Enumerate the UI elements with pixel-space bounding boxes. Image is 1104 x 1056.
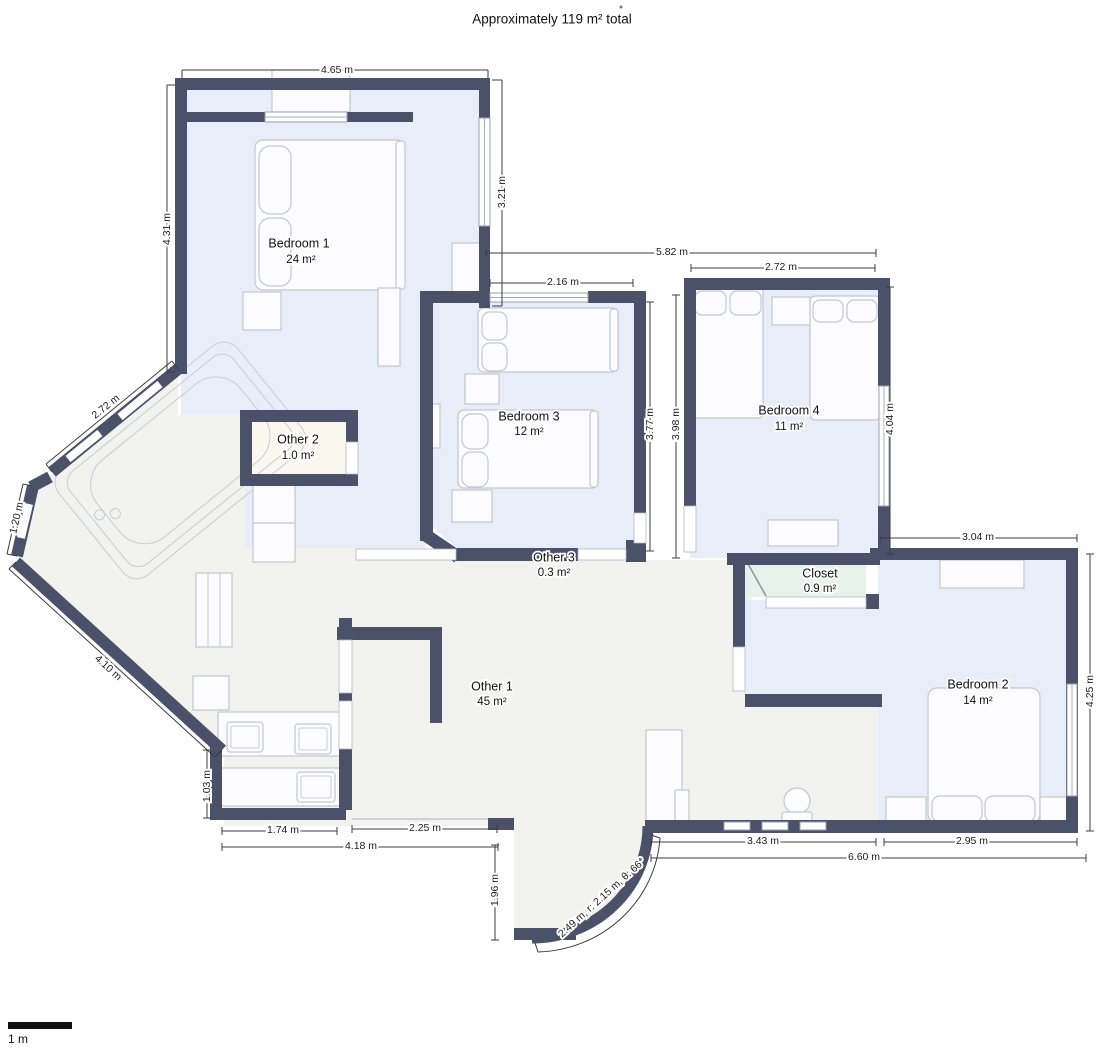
- bedroom1-double-bed: [255, 140, 405, 290]
- dim-b2-bottom: 2.95 m: [956, 835, 988, 847]
- hallway-cabinet-double: [253, 484, 295, 562]
- area-bedroom3: 12 m²: [514, 426, 544, 438]
- dim-b2-top: 3.04 m: [962, 531, 994, 543]
- dim-toilet-bottom: 3.43 m: [747, 835, 779, 847]
- area-bedroom2: 14 m²: [963, 695, 993, 707]
- dim-bottom-left-span: 4.18 m: [345, 840, 377, 852]
- area-bedroom4: 11 m²: [775, 421, 804, 433]
- bedroom1-bookshelf: [378, 288, 400, 366]
- dim-b1-right: 3.21 m: [496, 176, 508, 208]
- plan-title: Approximately 119 m² total: [472, 12, 632, 27]
- dim-b3-top: 2.16 m: [547, 276, 579, 288]
- scale-bar-rule: [8, 1022, 72, 1029]
- dim-b4-top: 2.72 m: [765, 261, 797, 273]
- dim-kitchen-bottom: 1.74 m: [267, 824, 299, 836]
- label-closet: Closet: [802, 566, 838, 580]
- room-other2-fill: [246, 416, 352, 478]
- dim-top-span: 5.82 m: [656, 246, 688, 258]
- bedroom1-dresser: [272, 70, 350, 112]
- label-bedroom2: Bedroom 2: [947, 677, 1008, 691]
- bedroom4-nightstand: [772, 297, 810, 325]
- label-bedroom4: Bedroom 4: [758, 403, 819, 417]
- kitchen-counter-upper: [218, 712, 340, 756]
- area-bedroom1: 24 m²: [286, 254, 316, 266]
- scale-bar: 1 m: [8, 1022, 72, 1046]
- scale-bar-label: 1 m: [8, 1032, 28, 1046]
- dim-b1-left: 4.31 m: [161, 213, 173, 245]
- bedroom3-bed-upper: [478, 308, 618, 372]
- dim-b1-width: 4.65 m: [321, 64, 353, 76]
- radiator: [196, 573, 232, 647]
- bedroom3-nightstand-upper: [465, 374, 499, 404]
- bedroom2-nook-fill: [745, 600, 878, 695]
- dim-b3-right: 3.77 m: [644, 408, 656, 440]
- area-other2: 1.0 m²: [282, 450, 315, 462]
- bedroom3-nightstand-lower: [452, 490, 492, 522]
- label-other2: Other 2: [277, 432, 319, 446]
- kitchen-fridge: [193, 676, 229, 710]
- kitchen-counter-lower: [218, 768, 340, 806]
- dim-kitchen-left: 1.03 m: [201, 770, 213, 802]
- area-closet: 0.9 m²: [804, 583, 837, 595]
- label-other1: Other 1: [471, 679, 513, 693]
- floor-plan-canvas: 4.65 m 4.31 m 3.21 m 5.82 m 2.16 m 2.72 …: [0, 0, 1104, 1056]
- bedroom1-nightstand: [243, 292, 281, 330]
- label-bedroom1: Bedroom 1: [268, 236, 329, 250]
- wc-radiator: [675, 790, 689, 824]
- bedroom2-dresser: [940, 560, 1024, 588]
- stray-dot-mark: [620, 6, 623, 9]
- dim-b4-right: 4.04 m: [884, 403, 896, 435]
- bedroom2-double-bed: [928, 688, 1040, 823]
- bedroom4-bed-left: [692, 287, 763, 418]
- area-other1: 45 m²: [477, 696, 507, 708]
- area-other3: 0.3 m²: [538, 567, 571, 579]
- dim-b2-right: 4.25 m: [1084, 675, 1096, 707]
- label-bedroom3: Bedroom 3: [498, 409, 559, 423]
- label-other3: Other 3: [533, 550, 575, 564]
- dim-entry-bottom: 2.25 m: [409, 822, 441, 834]
- dim-entry-left: 1.96 m: [489, 874, 501, 906]
- bedroom4-bed-right: [810, 296, 880, 420]
- bedroom4-dresser: [768, 520, 838, 546]
- dim-bottom-right-span: 6.60 m: [848, 851, 880, 863]
- dim-b3-right-outer: 3.98 m: [670, 408, 682, 440]
